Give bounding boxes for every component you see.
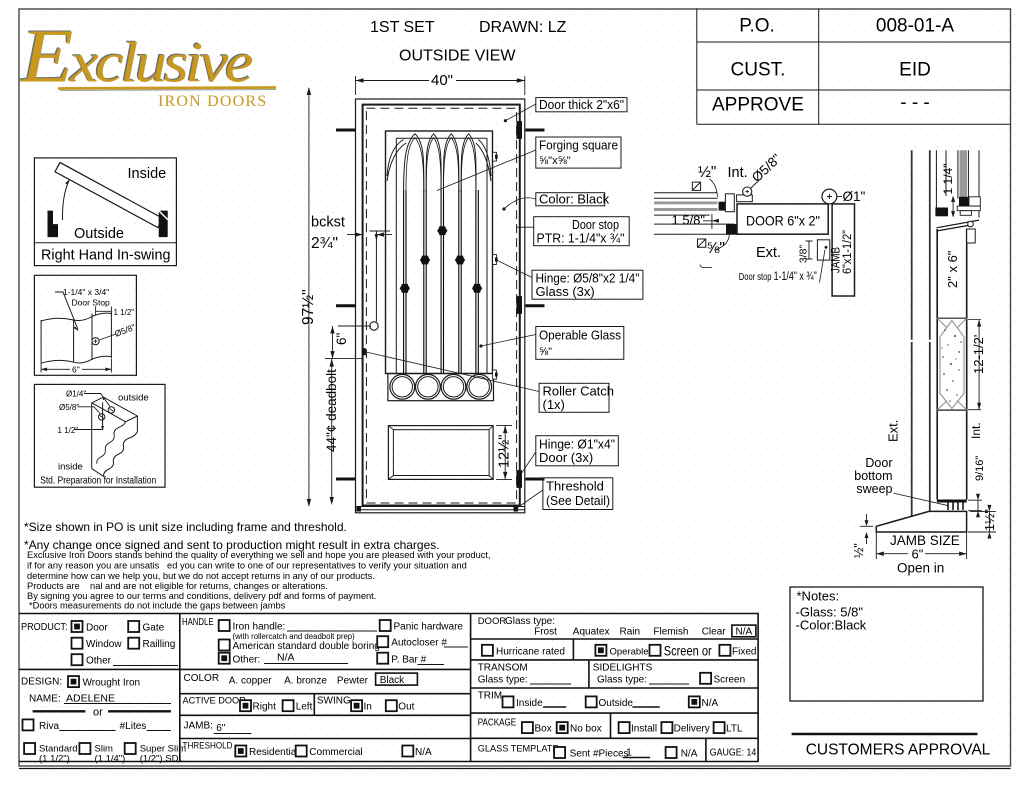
svg-text:Residential: Residential <box>249 747 298 758</box>
svg-text:Commercial: Commercial <box>309 747 362 758</box>
svg-text:Hurricane rated: Hurricane rated <box>496 646 565 657</box>
svg-text:Glass type:: Glass type: <box>478 675 528 686</box>
svg-text:6": 6" <box>334 332 349 345</box>
svg-text:Window: Window <box>86 639 122 650</box>
svg-text:CUST.: CUST. <box>731 60 786 81</box>
svg-text:In: In <box>364 702 372 713</box>
svg-text:CUSTOMERS APPROVAL: CUSTOMERS APPROVAL <box>806 742 991 759</box>
svg-text:bottom: bottom <box>854 469 892 483</box>
svg-text:COLOR: COLOR <box>184 673 220 684</box>
svg-text:No box: No box <box>570 724 602 735</box>
svg-text:LTL: LTL <box>726 724 743 735</box>
svg-text:outside: outside <box>118 393 149 404</box>
svg-text:Int.: Int. <box>728 165 748 181</box>
svg-text:⅝": ⅝" <box>539 346 552 358</box>
svg-text:N/A: N/A <box>681 749 698 760</box>
svg-text:Products are nal and are no: Products are nal and are not eligible fo… <box>27 581 328 591</box>
svg-text:*Doors measurements do not inc: *Doors measurements do not include the g… <box>29 601 286 611</box>
svg-text:DOOR: DOOR <box>478 616 507 627</box>
svg-text:2" x 6": 2" x 6" <box>945 250 960 288</box>
svg-text:6"x1-1/2": 6"x1-1/2" <box>842 230 854 274</box>
svg-text:Sent #Pieces: Sent #Pieces <box>570 749 629 760</box>
svg-text:*Notes:: *Notes: <box>797 589 840 604</box>
svg-text:GAUGE: 14: GAUGE: 14 <box>710 748 757 759</box>
svg-text:Fixed: Fixed <box>732 646 756 657</box>
svg-text:ACTIVE DOOR: ACTIVE DOOR <box>183 696 247 706</box>
svg-text:Glass type:: Glass type: <box>597 675 647 686</box>
svg-text:Door: Door <box>86 623 108 634</box>
svg-text:(with rollercatch and deadbolt: (with rollercatch and deadbolt prep) <box>233 632 356 641</box>
svg-text:American standard double borin: American standard double boring <box>233 641 380 652</box>
svg-text:⅝": ⅝" <box>707 240 725 257</box>
svg-text:6": 6" <box>912 547 924 562</box>
svg-text:N/A: N/A <box>702 698 719 709</box>
svg-text:A. copper: A. copper <box>229 676 272 687</box>
svg-text:008-01-A: 008-01-A <box>876 16 954 37</box>
svg-text:Out: Out <box>398 702 414 713</box>
svg-text:½": ½" <box>852 543 866 558</box>
svg-text:JAMB:: JAMB: <box>184 721 213 732</box>
svg-text:Ext.: Ext. <box>756 245 781 261</box>
svg-text:sweep: sweep <box>856 482 892 496</box>
svg-text:Glass (3x): Glass (3x) <box>536 284 595 299</box>
svg-text:P. Bar #: P. Bar # <box>391 654 426 665</box>
svg-text:Other: Other <box>86 656 112 667</box>
svg-text:Door (3x): Door (3x) <box>539 450 593 465</box>
svg-text:Flemish: Flemish <box>653 627 688 638</box>
svg-text:NAME:: NAME: <box>29 694 61 705</box>
svg-text:Operable Glass: Operable Glass <box>539 328 621 343</box>
svg-text:inside: inside <box>58 462 83 473</box>
svg-text:(1x): (1x) <box>543 397 565 412</box>
svg-text:Ø1": Ø1" <box>843 189 866 204</box>
svg-text:40": 40" <box>431 72 453 89</box>
svg-text:Inside: Inside <box>516 698 543 709</box>
svg-text:if for any reason you are unsa: if for any reason you are unsatis ed you… <box>27 561 467 571</box>
svg-text:1 1/2": 1 1/2" <box>114 308 135 317</box>
svg-text:Operable: Operable <box>610 646 649 657</box>
svg-text:Std. Preparation for Installat: Std. Preparation for Installation <box>40 476 156 487</box>
svg-text:Box: Box <box>535 724 552 735</box>
svg-text:Black: Black <box>380 675 405 686</box>
svg-text:By signing you agree to our te: By signing you agree to our terms and co… <box>27 591 376 601</box>
svg-text:(1 1/2"): (1 1/2") <box>39 754 70 765</box>
svg-text:ADELENE: ADELENE <box>66 693 115 705</box>
svg-text:Panic hardware: Panic hardware <box>394 622 464 633</box>
svg-text:DOOR 6"x 2": DOOR 6"x 2" <box>746 214 820 229</box>
svg-text:DESIGN:: DESIGN: <box>21 677 62 688</box>
svg-text:(1/2") SDL: (1/2") SDL <box>140 754 184 765</box>
svg-text:3/8": 3/8" <box>798 245 810 264</box>
svg-text:N/A: N/A <box>415 747 432 758</box>
svg-text:Glass type:: Glass type: <box>505 616 555 627</box>
svg-text:Door: Door <box>865 456 892 470</box>
svg-text:Ext.: Ext. <box>886 420 901 442</box>
svg-text:Railling: Railling <box>143 639 176 650</box>
svg-text:Color: Black: Color: Black <box>539 192 610 207</box>
svg-text:PTR: 1-1/4"x ¾": PTR: 1-1/4"x ¾" <box>537 231 625 246</box>
svg-text:Riva: Riva <box>39 721 59 732</box>
svg-text:Other:: Other: <box>233 655 261 666</box>
svg-text:Open in: Open in <box>897 561 944 576</box>
svg-text:1 1/2": 1 1/2" <box>58 426 79 435</box>
svg-text:1ST SET: 1ST SET <box>370 19 435 36</box>
svg-text:EID: EID <box>899 60 931 81</box>
svg-text:SIDELIGHTS: SIDELIGHTS <box>593 663 653 674</box>
svg-text:Pewter: Pewter <box>337 676 369 687</box>
svg-text:Ø1/4": Ø1/4" <box>66 390 86 399</box>
svg-text:HANDLE: HANDLE <box>182 617 214 628</box>
svg-text:Aquatex: Aquatex <box>573 627 610 638</box>
svg-text:Screen or: Screen or <box>664 643 712 658</box>
svg-text:*Size shown in PO is unit size: *Size shown in PO is unit size including… <box>24 520 347 534</box>
svg-text:Rain: Rain <box>620 627 641 638</box>
svg-text:THRESHOLD: THRESHOLD <box>183 741 233 751</box>
svg-text:bckst: bckst <box>311 215 345 231</box>
svg-text:Clear: Clear <box>702 627 727 638</box>
svg-text:TRANSOM: TRANSOM <box>478 663 528 674</box>
svg-text:#Lites: #Lites <box>120 721 147 732</box>
svg-text:Install: Install <box>631 724 657 735</box>
svg-text:12½": 12½" <box>497 435 513 468</box>
svg-text:GLASS TEMPLATE: GLASS TEMPLATE <box>478 744 559 754</box>
svg-text:Forging square: Forging square <box>539 138 618 153</box>
svg-text:Left: Left <box>296 702 313 713</box>
svg-text:(See Detail): (See Detail) <box>546 493 610 508</box>
svg-text:Door thick 2"x6": Door thick 2"x6" <box>539 97 624 112</box>
svg-text:APPROVE: APPROVE <box>712 95 804 116</box>
svg-text:½": ½" <box>698 164 716 181</box>
svg-text:A. bronze: A. bronze <box>284 676 327 687</box>
svg-text:44"¢ deadbolt: 44"¢ deadbolt <box>324 369 339 452</box>
svg-text:-Color:Black: -Color:Black <box>796 618 867 633</box>
svg-text:Exclusive Iron Doors stands be: Exclusive Iron Doors stands behind the q… <box>27 550 491 560</box>
svg-text:Wrought Iron: Wrought Iron <box>83 678 141 689</box>
svg-text:- - -: - - - <box>900 93 930 114</box>
svg-text:Inside: Inside <box>128 166 167 182</box>
svg-text:(1 1/4"): (1 1/4") <box>95 754 126 765</box>
svg-text:97½": 97½" <box>300 289 317 325</box>
svg-text:N/A: N/A <box>277 652 295 664</box>
svg-text:Outside: Outside <box>74 226 124 242</box>
svg-text:Autocloser #: Autocloser # <box>391 638 447 649</box>
svg-text:2¾": 2¾" <box>311 235 338 252</box>
svg-text:12-1/2': 12-1/2' <box>971 335 986 374</box>
svg-text:1: 1 <box>626 747 632 759</box>
svg-text:Frost: Frost <box>534 627 557 638</box>
svg-text:6": 6" <box>216 723 226 734</box>
svg-text:TRIM: TRIM <box>478 691 502 702</box>
svg-text:9/16": 9/16" <box>974 456 986 481</box>
svg-text:JAMB SIZE: JAMB SIZE <box>890 533 960 548</box>
svg-text:Outside: Outside <box>599 698 634 709</box>
svg-text:1 5/8": 1 5/8" <box>672 213 706 228</box>
svg-text:Gate: Gate <box>143 623 165 634</box>
svg-text:6": 6" <box>72 365 80 375</box>
svg-text:P.O.: P.O. <box>739 16 775 37</box>
svg-text:Door Stop: Door Stop <box>72 298 111 308</box>
svg-text:Threshold: Threshold <box>546 479 604 494</box>
svg-text:or: or <box>93 707 103 719</box>
svg-text:determine how can we help you,: determine how can we help you, but we do… <box>27 571 375 581</box>
svg-text:N/A: N/A <box>736 627 753 638</box>
svg-text:IRON DOORS: IRON DOORS <box>158 93 267 110</box>
svg-text:1-1/4" x 3/4": 1-1/4" x 3/4" <box>63 287 109 297</box>
svg-text:PRODUCT:: PRODUCT: <box>21 622 68 633</box>
svg-text:JAMB: JAMB <box>831 247 843 273</box>
svg-text:Right: Right <box>253 702 277 713</box>
svg-text:Right Hand In-swing: Right Hand In-swing <box>41 247 171 264</box>
svg-text:Delivery: Delivery <box>674 724 710 735</box>
svg-text:Door stop 1-1/4" x ¾": Door stop 1-1/4" x ¾" <box>739 271 817 283</box>
svg-text:1 1/4": 1 1/4" <box>941 164 955 195</box>
svg-text:Ø5/8": Ø5/8" <box>59 403 79 412</box>
svg-text:PACKAGE: PACKAGE <box>478 718 517 729</box>
svg-text:Int.: Int. <box>969 422 983 439</box>
svg-text:1½": 1½" <box>983 509 997 531</box>
svg-text:⅝"x⅝": ⅝"x⅝" <box>539 155 571 167</box>
svg-text:Screen: Screen <box>714 674 746 685</box>
svg-text:SWING: SWING <box>317 696 351 707</box>
svg-text:DRAWN: LZ: DRAWN: LZ <box>479 19 567 36</box>
svg-text:OUTSIDE VIEW: OUTSIDE VIEW <box>399 48 516 65</box>
